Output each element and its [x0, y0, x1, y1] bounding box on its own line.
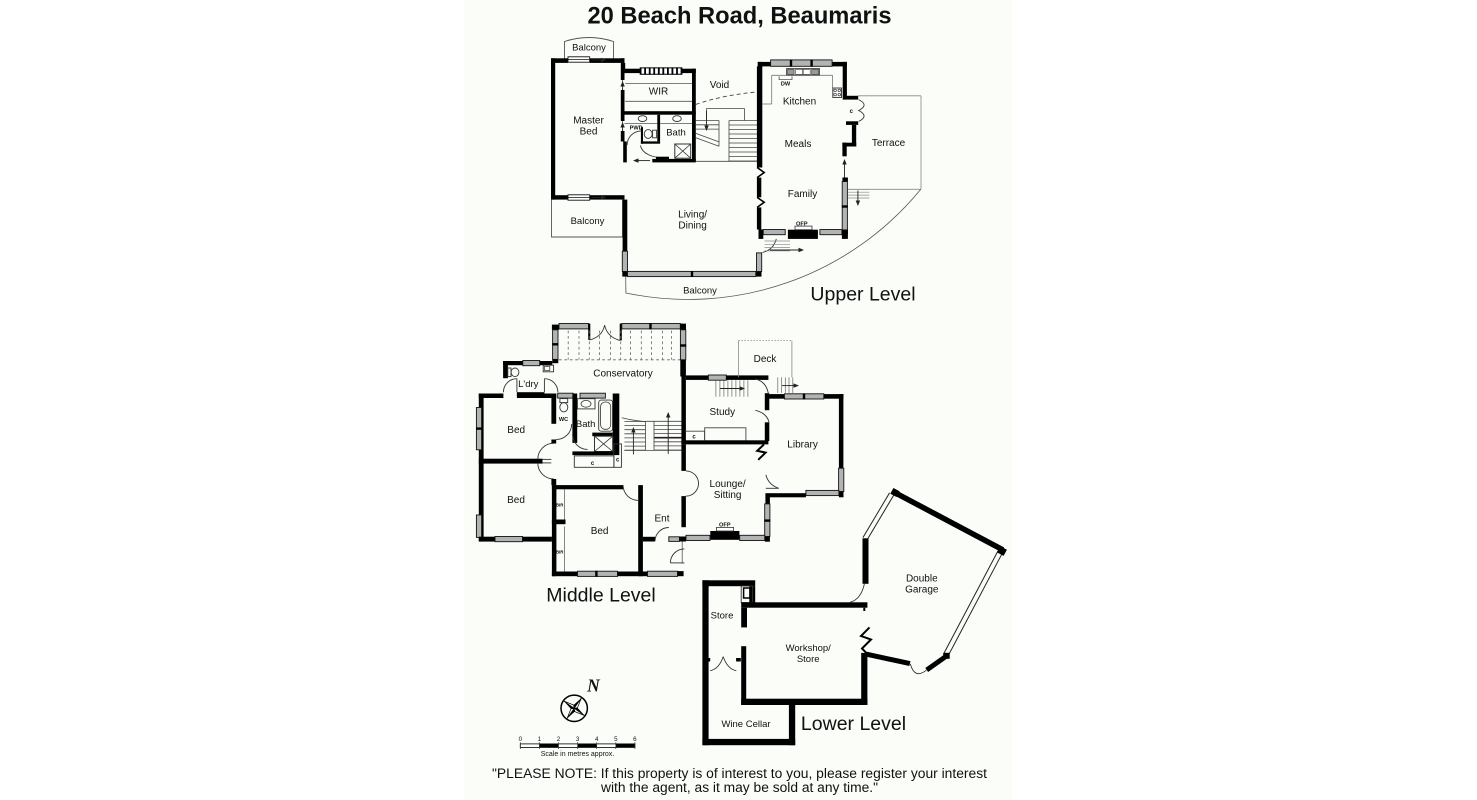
svg-text:PWD: PWD [630, 125, 643, 131]
svg-text:L'dry: L'dry [518, 379, 539, 390]
svg-text:Void: Void [710, 80, 729, 91]
svg-text:Bath: Bath [666, 128, 686, 139]
svg-text:Conservatory: Conservatory [593, 368, 652, 379]
svg-text:Study: Study [710, 407, 736, 418]
svg-text:OFP: OFP [796, 221, 808, 227]
svg-text:BIR: BIR [556, 503, 564, 508]
svg-text:6: 6 [633, 736, 637, 743]
svg-text:WC: WC [559, 417, 568, 423]
svg-text:BIR: BIR [556, 550, 564, 555]
svg-text:Meals: Meals [785, 139, 812, 150]
svg-text:Store: Store [711, 610, 734, 621]
svg-text:Deck: Deck [754, 354, 778, 365]
svg-text:Lower Level: Lower Level [801, 713, 906, 735]
svg-text:4: 4 [595, 736, 599, 743]
svg-text:Library: Library [787, 440, 818, 451]
svg-text:Lounge/: Lounge/ [710, 479, 746, 490]
svg-text:Scale in metres approx.: Scale in metres approx. [541, 751, 615, 758]
svg-text:Kitchen: Kitchen [783, 97, 816, 108]
svg-text:Bath: Bath [576, 419, 596, 430]
svg-text:OFP: OFP [719, 523, 731, 529]
svg-text:Bed: Bed [591, 526, 609, 537]
svg-text:1: 1 [538, 736, 542, 743]
svg-text:Upper Level: Upper Level [810, 284, 915, 306]
svg-text:Living/: Living/ [678, 210, 707, 221]
svg-text:with the agent, as it may be s: with the agent, as it may be sold at any… [600, 780, 878, 796]
svg-text:Garage: Garage [905, 585, 939, 596]
svg-text:20 Beach Road, Beaumaris: 20 Beach Road, Beaumaris [588, 3, 892, 30]
svg-text:Balcony: Balcony [572, 43, 606, 54]
svg-text:3: 3 [576, 736, 580, 743]
svg-text:Bed: Bed [580, 127, 598, 138]
svg-text:Middle Level: Middle Level [546, 585, 655, 607]
svg-text:Double: Double [906, 574, 938, 585]
svg-text:WIR: WIR [649, 87, 668, 98]
svg-text:2: 2 [557, 736, 561, 743]
svg-text:Ent: Ent [654, 514, 669, 525]
svg-text:0: 0 [519, 736, 523, 743]
svg-text:Balcony: Balcony [571, 216, 605, 227]
svg-text:Terrace: Terrace [872, 138, 906, 149]
svg-text:Wine Cellar: Wine Cellar [721, 719, 770, 730]
svg-text:Bed: Bed [507, 495, 525, 506]
svg-text:Store: Store [797, 654, 820, 665]
svg-text:DW: DW [781, 82, 791, 88]
svg-text:Balcony: Balcony [683, 286, 717, 297]
svg-text:Family: Family [788, 189, 817, 200]
svg-text:Master: Master [573, 116, 604, 127]
svg-text:Dining: Dining [678, 221, 706, 232]
svg-text:Sitting: Sitting [714, 490, 742, 501]
svg-text:5: 5 [614, 736, 618, 743]
svg-text:Bed: Bed [507, 425, 525, 436]
svg-text:Workshop/: Workshop/ [786, 643, 832, 654]
svg-text:N: N [586, 676, 601, 696]
